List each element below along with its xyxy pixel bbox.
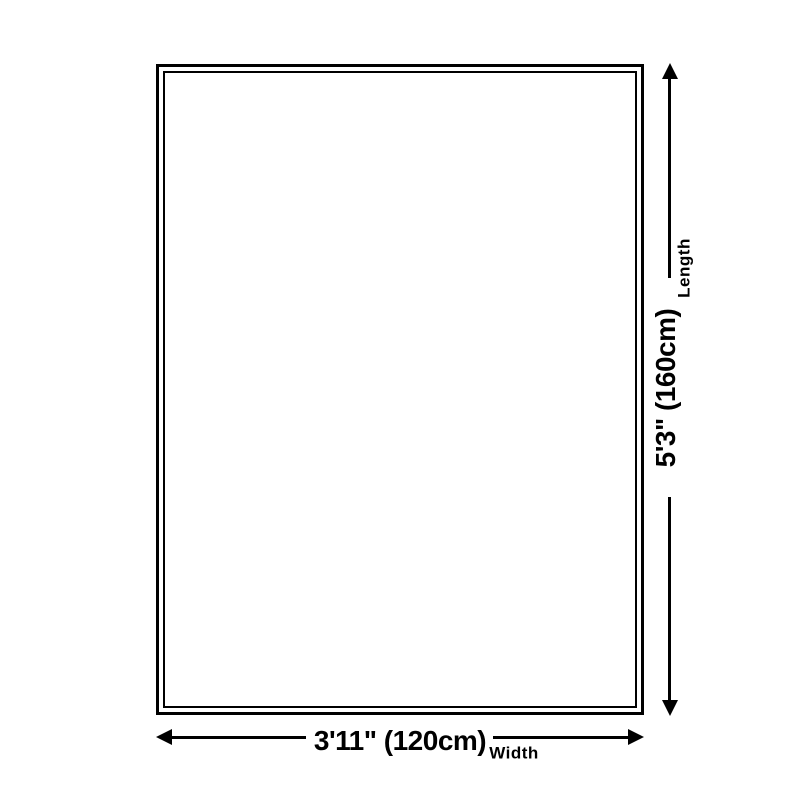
width-dimension-line-right [493, 736, 628, 739]
length-dimension-label: Length [676, 238, 693, 298]
width-arrow-left-icon [156, 729, 172, 745]
width-dimension-line-left [171, 736, 306, 739]
length-dimension-line-upper [668, 78, 671, 278]
length-arrow-down-icon [662, 700, 678, 716]
width-dimension-value: 3'11" (120cm) [314, 727, 486, 755]
width-dimension-label: Width [489, 745, 539, 762]
length-dimension-value: 5'3" (160cm) [652, 309, 680, 468]
width-arrow-right-icon [628, 729, 644, 745]
rug-outline-outer [156, 64, 644, 715]
length-arrow-up-icon [662, 63, 678, 79]
length-dimension-line-lower [668, 497, 671, 701]
rug-outline-inner [163, 71, 637, 708]
dimension-diagram: Length 5'3" (160cm) 3'11" (120cm) Width [0, 0, 800, 800]
